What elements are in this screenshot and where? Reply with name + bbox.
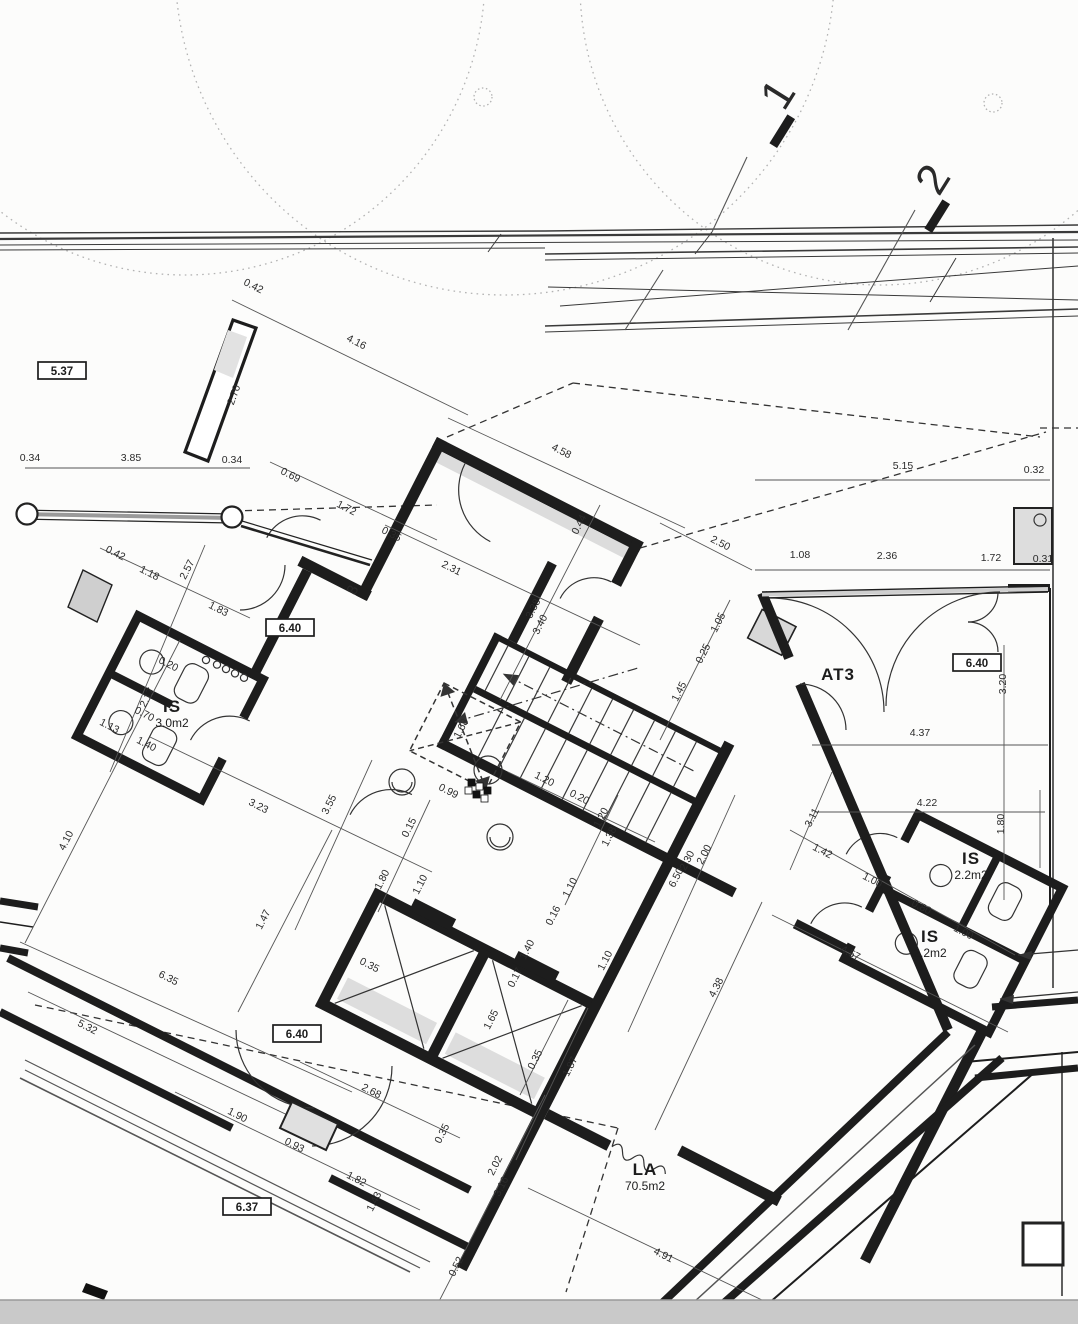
dimension-label: 2.50 xyxy=(709,533,733,553)
dimension-label: 0.34 xyxy=(222,454,243,466)
toilet-icon xyxy=(951,947,991,991)
dimension-label: 1.47 xyxy=(253,908,273,932)
level-marker: 6.37 xyxy=(223,1198,271,1215)
svg-text:6.40: 6.40 xyxy=(286,1029,308,1041)
svg-text:2.2m2: 2.2m2 xyxy=(913,946,947,960)
svg-text:2.2m2: 2.2m2 xyxy=(954,868,988,882)
dimension-label: 0.15 xyxy=(399,816,419,840)
dimension-label: 1.08 xyxy=(790,549,811,561)
stair-wall xyxy=(663,741,735,867)
svg-text:LA: LA xyxy=(633,1160,658,1179)
wall xyxy=(544,1109,611,1151)
dimension-label: 4.58 xyxy=(550,441,574,461)
dimension-label: 0.32 xyxy=(1024,464,1045,476)
survey-point-icon xyxy=(984,94,1002,112)
room-label: IS2.2m2 xyxy=(954,849,988,882)
dimension-label: 2.36 xyxy=(877,550,898,562)
dimension-label: 1.10 xyxy=(410,873,430,897)
dimension-label: 0.34 xyxy=(20,452,41,464)
dimension-label: 0.42 xyxy=(242,276,266,296)
fence-post-icon xyxy=(222,507,243,528)
svg-text:70.5m2: 70.5m2 xyxy=(625,1179,665,1193)
svg-text:5.37: 5.37 xyxy=(51,366,73,378)
dimension-label: 1.45 xyxy=(669,680,689,704)
dimension-label: 3.11 xyxy=(803,806,823,829)
section-markers: 12 xyxy=(733,71,963,233)
wall xyxy=(677,1145,782,1206)
dimension-label: 2.68 xyxy=(360,1081,384,1101)
dimension-label: 1.40 xyxy=(517,938,537,962)
svg-text:1: 1 xyxy=(751,71,806,118)
sink-icon xyxy=(926,861,956,891)
dimension-label: 2.02 xyxy=(485,1154,505,1178)
level-marker: 6.40 xyxy=(266,619,314,636)
level-marker: 6.40 xyxy=(953,654,1001,671)
dimension-label: 0.35 xyxy=(432,1122,452,1146)
dimension-label: 3.23 xyxy=(247,796,271,816)
dimension-label: 3.55 xyxy=(319,793,339,817)
dimension-label: 4.38 xyxy=(706,976,726,1000)
dimension-label: 5.32 xyxy=(76,1017,100,1037)
dimension-label: 1.13 xyxy=(98,716,122,736)
dimension-label: 0.35 xyxy=(358,955,382,975)
planter xyxy=(185,320,256,461)
building-core xyxy=(0,353,1078,1324)
room-label: IS2.2m2 xyxy=(913,927,947,960)
svg-text:6.40: 6.40 xyxy=(279,623,301,635)
door-arcs-global xyxy=(236,565,1000,1146)
stair-arrow-icon xyxy=(500,668,519,686)
stair-wall xyxy=(492,632,728,756)
survey-point-icon xyxy=(474,88,492,106)
room-label: AT3 xyxy=(821,665,855,684)
dimension-label: 1.05 xyxy=(708,611,728,635)
dimension-label: 1.80 xyxy=(995,814,1007,835)
svg-text:AT3: AT3 xyxy=(821,665,855,684)
dimension-label: 0.16 xyxy=(543,904,563,928)
dimension-label: 1.65 xyxy=(481,1008,501,1032)
dimension-label: 0.69 xyxy=(279,465,303,485)
svg-text:6.37: 6.37 xyxy=(236,1202,258,1214)
dimension-label: 0.42 xyxy=(104,543,128,563)
svg-text:IS: IS xyxy=(921,927,939,946)
dimension-label: 1.72 xyxy=(981,552,1002,564)
section-marker: 2 xyxy=(888,156,963,233)
level-marker: 6.40 xyxy=(273,1025,321,1042)
shaft-arrow-icon xyxy=(438,683,457,702)
wall-block xyxy=(68,570,112,622)
section-leaders xyxy=(625,157,915,330)
dimension-label: 0.31 xyxy=(1033,553,1054,565)
dimension-lines xyxy=(20,300,1050,1324)
svg-text:6.40: 6.40 xyxy=(966,658,988,670)
dimension-label: 1.42 xyxy=(811,841,835,861)
level-marker: 5.37 xyxy=(38,362,86,379)
window-arcs xyxy=(968,592,998,652)
dimension-label: 0.70 xyxy=(133,704,157,724)
floor-plan-sheet: 0.424.162.700.343.850.340.691.724.585.15… xyxy=(0,0,1078,1324)
dimension-label: 1.83 xyxy=(207,599,231,619)
dimension-label: 4.37 xyxy=(910,727,931,739)
floor-plan-canvas: 0.424.162.700.343.850.340.691.724.585.15… xyxy=(0,0,1078,1324)
svg-text:IS: IS xyxy=(962,849,980,868)
section-marker: 1 xyxy=(733,71,808,148)
toilet-icon xyxy=(985,880,1025,924)
dimension-label: 1.40 xyxy=(135,734,159,754)
svg-text:2: 2 xyxy=(906,156,961,203)
dimension-label: 0.99 xyxy=(437,781,461,801)
fence-post-icon xyxy=(17,504,38,525)
dimension-label: 4.16 xyxy=(345,332,369,352)
svg-text:IS: IS xyxy=(163,697,181,716)
svg-text:3.0m2: 3.0m2 xyxy=(155,716,189,730)
dimension-label: 4.91 xyxy=(652,1245,676,1265)
scan-edge xyxy=(0,1300,1078,1324)
wall xyxy=(356,437,447,601)
dimension-label: 1.18 xyxy=(138,563,162,583)
dimension-label: 5.15 xyxy=(893,460,914,472)
dimension-label: 2.31 xyxy=(440,558,464,578)
dimension-label: 3.85 xyxy=(121,452,142,464)
dimension-label: 0.25 xyxy=(693,642,713,666)
site-circles xyxy=(0,0,1078,295)
room-label: LA70.5m2 xyxy=(625,1160,665,1193)
dimension-label: 6.35 xyxy=(157,968,181,988)
legend-box xyxy=(1023,1223,1063,1265)
dimension-label: 1.00 xyxy=(952,922,976,942)
dimension-label: 4.22 xyxy=(917,797,938,809)
north-bar-icon xyxy=(82,1283,108,1300)
dimension-label: 3.20 xyxy=(997,674,1009,695)
stair-wall xyxy=(436,738,674,866)
